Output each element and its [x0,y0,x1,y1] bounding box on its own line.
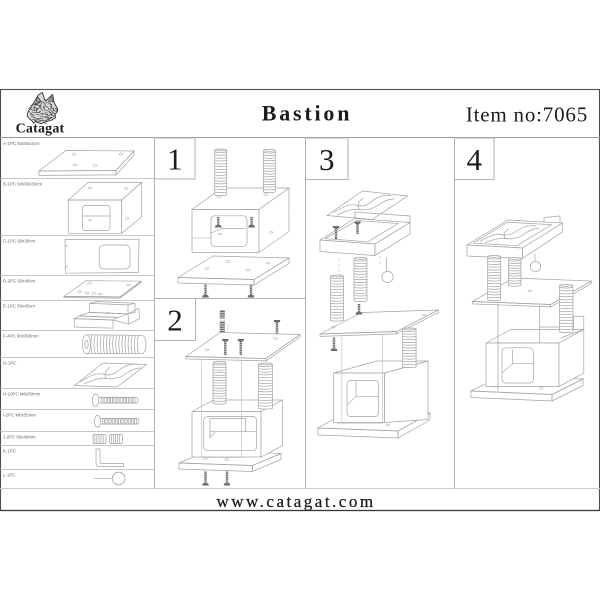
svg-text:D-2PC 50x40cm: D-2PC 50x40cm [3,279,36,284]
svg-text:A-1PC 50x50x4cm: A-1PC 50x50x4cm [3,141,40,146]
svg-text:1: 1 [167,142,183,177]
svg-text:L-1PC: L-1PC [3,473,15,478]
svg-text:2: 2 [167,303,183,338]
svg-text:4: 4 [466,142,482,177]
svg-text:3: 3 [319,142,335,177]
svg-text:E-1PC 50x45cm: E-1PC 50x45cm [3,304,35,309]
svg-text:K-1PC: K-1PC [3,449,16,454]
svg-text:I-2PC M6x35mm: I-2PC M6x35mm [3,413,36,418]
svg-text:C-1PC 60x30cm: C-1PC 60x30cm [3,239,36,244]
svg-text:Bastion: Bastion [262,101,353,126]
svg-text:Item no:7065: Item no:7065 [466,103,588,127]
svg-text:Catagat: Catagat [16,122,65,137]
svg-text:www.catagat.com: www.catagat.com [216,492,375,511]
svg-text:J-2PC 90x40mm: J-2PC 90x40mm [3,435,36,440]
svg-text:B-1PC 60x30x30cm: B-1PC 60x30x30cm [3,182,42,187]
svg-text:H-10PC M6x50mm: H-10PC M6x50mm [3,392,41,397]
svg-text:G-1PC: G-1PC [3,361,16,366]
svg-text:F-4PC 90x300mm: F-4PC 90x300mm [3,334,39,339]
